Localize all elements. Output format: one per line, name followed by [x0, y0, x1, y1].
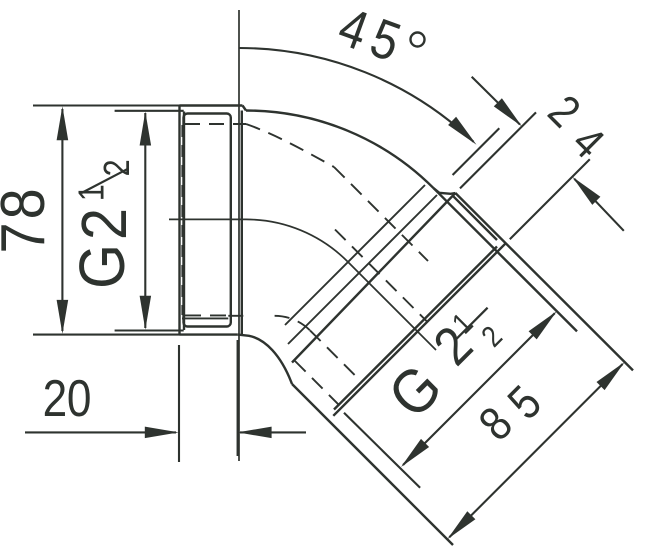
- svg-text:0: 0: [67, 370, 92, 428]
- svg-text:2: 2: [98, 159, 138, 176]
- svg-text:2: 2: [43, 370, 68, 428]
- svg-text:G: G: [66, 244, 137, 289]
- svg-text:8: 8: [0, 188, 57, 219]
- svg-text:2: 2: [68, 208, 139, 240]
- svg-text:7: 7: [0, 222, 57, 253]
